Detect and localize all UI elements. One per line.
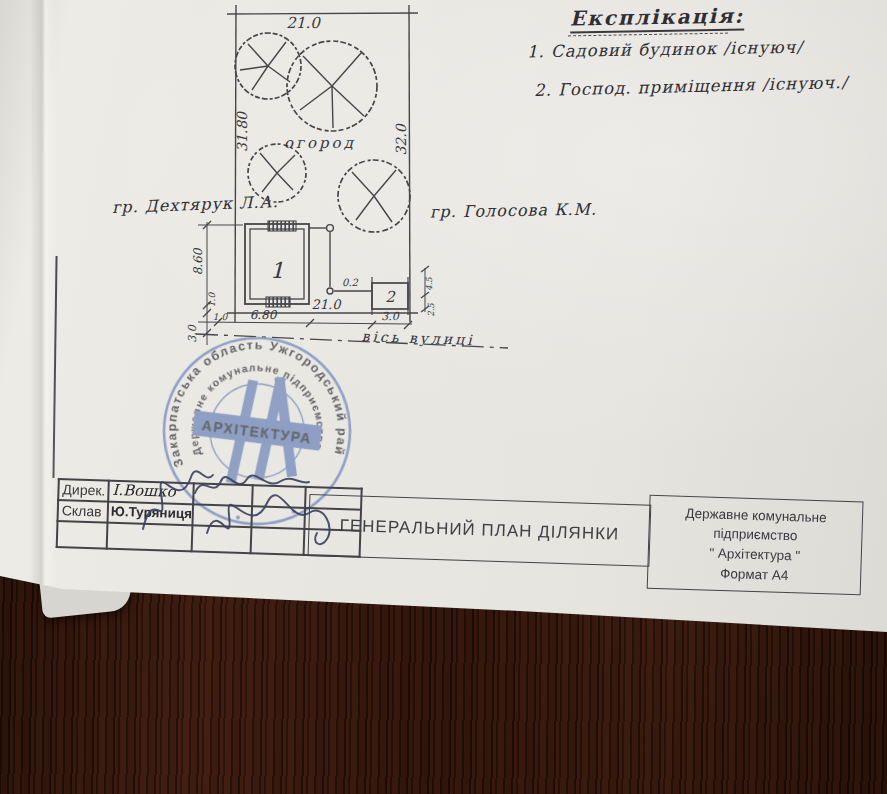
dimension-label: 3.0 xyxy=(381,310,399,323)
explication-item-2: 2. Господ. приміщення /існуюч./ xyxy=(534,73,848,100)
stamp-ring-outer-text: Закарпатська область Ужгородський район xyxy=(156,329,353,476)
tb-grid-line xyxy=(56,478,60,548)
garden-label: огород xyxy=(284,134,356,152)
sheet-frame-left-line xyxy=(52,256,57,478)
tree-branches xyxy=(240,42,290,90)
signatures-overlay xyxy=(95,455,375,565)
shed-number: 2 xyxy=(385,288,396,306)
org-line: Формат А4 xyxy=(720,564,789,586)
tree-branches xyxy=(300,52,364,128)
signature xyxy=(195,476,309,493)
tree-branches xyxy=(352,170,396,222)
dimension-label: 31.80 xyxy=(234,111,250,152)
signature xyxy=(143,471,213,529)
signature xyxy=(207,495,330,544)
dimension-label: 4.5 xyxy=(424,277,434,291)
tree-branches xyxy=(260,153,295,192)
dimension-label: 0.2 xyxy=(342,277,359,288)
plot-right-line xyxy=(409,5,410,322)
paper-crease xyxy=(30,0,56,585)
street-axis-label: вісь вулиці xyxy=(361,328,475,349)
dimension-label: 21.0 xyxy=(286,14,321,32)
dimension-label: 6.80 xyxy=(250,308,278,322)
dimension-label: 8.60 xyxy=(191,247,205,275)
organization-cell: Державне комунальне підприємство " Архіт… xyxy=(647,495,864,596)
house-porch-bottom xyxy=(266,297,290,307)
org-line: Державне комунальне xyxy=(685,504,827,528)
dimension-label: 2.5 xyxy=(426,303,436,317)
dimension-label: 32.0 xyxy=(393,123,409,155)
fence-post xyxy=(327,225,334,232)
dimension-label: 1.0 xyxy=(207,292,217,308)
org-line: підприємство xyxy=(713,524,798,546)
house-number: 1 xyxy=(270,258,284,283)
explication-item-1: 1. Садовий будинок /існуюч/ xyxy=(527,38,803,62)
fence-post xyxy=(327,288,333,294)
explication-title: Експлікація: xyxy=(570,3,745,33)
explication-underline xyxy=(568,33,728,37)
svg-text:Закарпатська область Ужгородсь: Закарпатська область Ужгородський район xyxy=(156,329,353,476)
dimension-label: 21.0 xyxy=(312,297,343,312)
site-plan-drawing: 21.0 31.80 32.0 огород 1 2 21.0 0.2 6.80… xyxy=(180,0,525,365)
plot-left-line xyxy=(235,5,236,322)
plot-top-line xyxy=(227,13,418,14)
house-porch-top xyxy=(268,221,296,231)
